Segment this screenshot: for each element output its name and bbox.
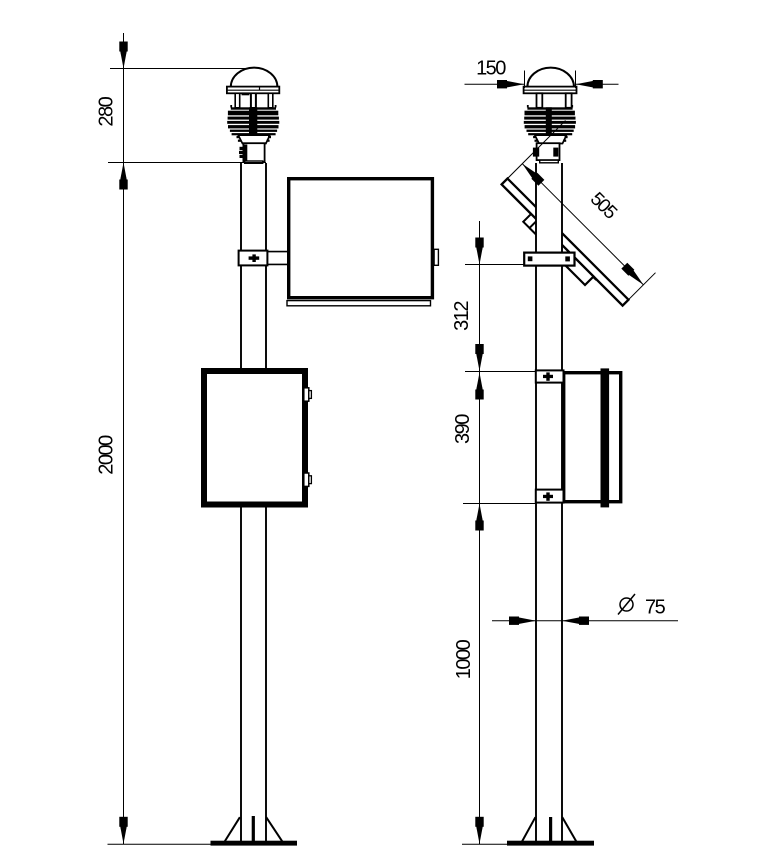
svg-text:312: 312 <box>451 301 473 331</box>
svg-text:2000: 2000 <box>95 435 117 475</box>
svg-text:1000: 1000 <box>453 639 475 679</box>
svg-text:150: 150 <box>476 58 506 80</box>
svg-text:390: 390 <box>452 414 474 444</box>
svg-text:75: 75 <box>645 597 666 619</box>
svg-text:280: 280 <box>95 96 117 126</box>
